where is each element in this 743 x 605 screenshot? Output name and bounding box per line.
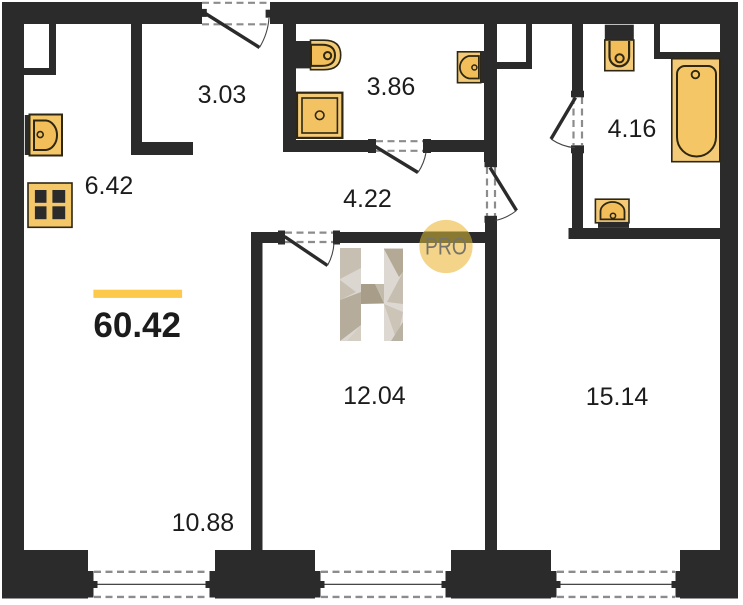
svg-text:PRO: PRO [425,234,467,261]
svg-text:4.16: 4.16 [608,115,657,143]
svg-text:15.14: 15.14 [586,383,649,411]
svg-text:10.88: 10.88 [172,509,235,537]
svg-text:4.22: 4.22 [343,185,392,213]
svg-text:12.04: 12.04 [343,382,406,410]
svg-text:60.42: 60.42 [93,306,181,345]
svg-text:6.42: 6.42 [85,172,134,200]
svg-text:3.03: 3.03 [198,81,247,109]
svg-text:3.86: 3.86 [367,73,416,101]
